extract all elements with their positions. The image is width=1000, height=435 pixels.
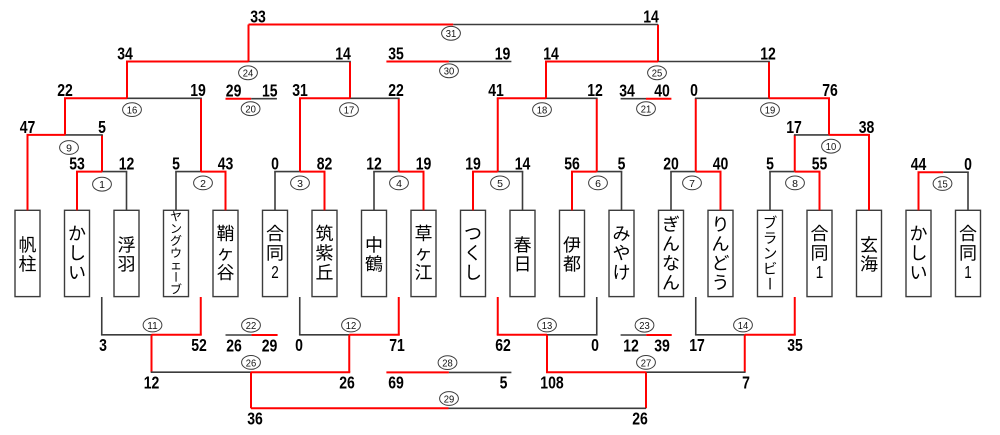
svg-text:55: 55 [812,154,828,174]
svg-text:17: 17 [344,105,355,117]
svg-text:24: 24 [243,68,254,80]
svg-text:5: 5 [618,154,626,174]
svg-text:14: 14 [515,154,531,174]
svg-text:26: 26 [339,373,355,393]
svg-text:10: 10 [826,141,837,153]
svg-text:34: 34 [619,81,635,101]
svg-text:5: 5 [500,373,508,393]
svg-text:17: 17 [786,117,802,137]
svg-text:69: 69 [388,373,404,393]
svg-text:16: 16 [127,105,138,117]
svg-text:19: 19 [495,43,511,63]
svg-text:108: 108 [540,373,564,393]
svg-text:7: 7 [689,178,695,190]
svg-text:27: 27 [641,357,652,369]
svg-text:76: 76 [822,80,838,100]
svg-text:15: 15 [262,81,278,101]
svg-text:26: 26 [226,335,242,355]
svg-text:82: 82 [317,154,333,174]
svg-text:14: 14 [335,43,351,63]
svg-text:1: 1 [964,262,972,282]
svg-text:34: 34 [117,43,133,63]
svg-text:38: 38 [859,117,875,137]
svg-text:12: 12 [366,154,382,174]
svg-text:12: 12 [144,373,160,393]
svg-text:35: 35 [787,335,803,355]
svg-text:28: 28 [442,358,453,370]
svg-text:1: 1 [816,262,824,282]
svg-text:52: 52 [191,335,207,355]
svg-text:12: 12 [119,154,135,174]
svg-text:19: 19 [465,154,481,174]
svg-text:19: 19 [416,154,432,174]
svg-text:53: 53 [69,154,85,174]
svg-text:9: 9 [66,142,72,154]
svg-text:14: 14 [643,6,659,26]
svg-text:19: 19 [190,80,206,100]
svg-text:2: 2 [271,262,279,282]
svg-text:20: 20 [245,104,256,116]
svg-text:56: 56 [564,154,580,174]
svg-text:71: 71 [389,335,405,355]
svg-text:23: 23 [639,320,650,332]
svg-text:22: 22 [246,320,257,332]
svg-text:19: 19 [765,105,776,117]
svg-text:12: 12 [623,335,639,355]
svg-text:39: 39 [654,335,670,355]
svg-text:29: 29 [226,81,242,101]
svg-text:12: 12 [760,43,776,63]
svg-text:14: 14 [543,43,559,63]
svg-text:62: 62 [495,335,511,355]
svg-text:14: 14 [738,320,749,332]
svg-text:26: 26 [246,357,257,369]
svg-text:43: 43 [218,154,234,174]
svg-text:12: 12 [346,320,357,332]
svg-text:36: 36 [247,409,263,429]
svg-text:3: 3 [297,178,303,190]
svg-text:11: 11 [147,320,158,332]
svg-text:3: 3 [99,335,107,355]
svg-text:0: 0 [690,80,698,100]
svg-text:0: 0 [295,335,303,355]
svg-text:41: 41 [488,80,504,100]
svg-text:1: 1 [99,179,105,191]
svg-text:12: 12 [587,80,603,100]
svg-text:5: 5 [766,154,774,174]
svg-text:0: 0 [591,335,599,355]
svg-text:21: 21 [641,104,652,116]
svg-text:40: 40 [713,154,729,174]
svg-text:8: 8 [792,178,798,190]
svg-text:17: 17 [689,335,705,355]
svg-text:44: 44 [911,154,927,174]
svg-text:31: 31 [292,80,308,100]
svg-text:0: 0 [271,154,279,174]
svg-text:29: 29 [444,393,455,405]
svg-text:31: 31 [446,28,457,40]
svg-text:5: 5 [497,178,503,190]
svg-text:26: 26 [632,409,648,429]
svg-text:40: 40 [654,81,670,101]
svg-text:2: 2 [200,178,206,190]
svg-text:6: 6 [595,178,601,190]
svg-text:18: 18 [537,105,548,117]
svg-text:5: 5 [98,117,106,137]
svg-text:25: 25 [652,68,663,80]
svg-text:33: 33 [250,6,266,26]
svg-text:47: 47 [20,117,36,137]
svg-text:29: 29 [262,335,278,355]
svg-text:22: 22 [388,80,404,100]
svg-text:20: 20 [663,154,679,174]
svg-text:0: 0 [964,154,972,174]
svg-text:13: 13 [542,320,553,332]
svg-text:35: 35 [388,43,404,63]
svg-text:5: 5 [172,154,180,174]
svg-text:22: 22 [57,80,73,100]
svg-text:4: 4 [396,178,402,190]
svg-text:7: 7 [742,373,750,393]
svg-text:15: 15 [937,178,948,190]
svg-text:30: 30 [444,66,455,78]
